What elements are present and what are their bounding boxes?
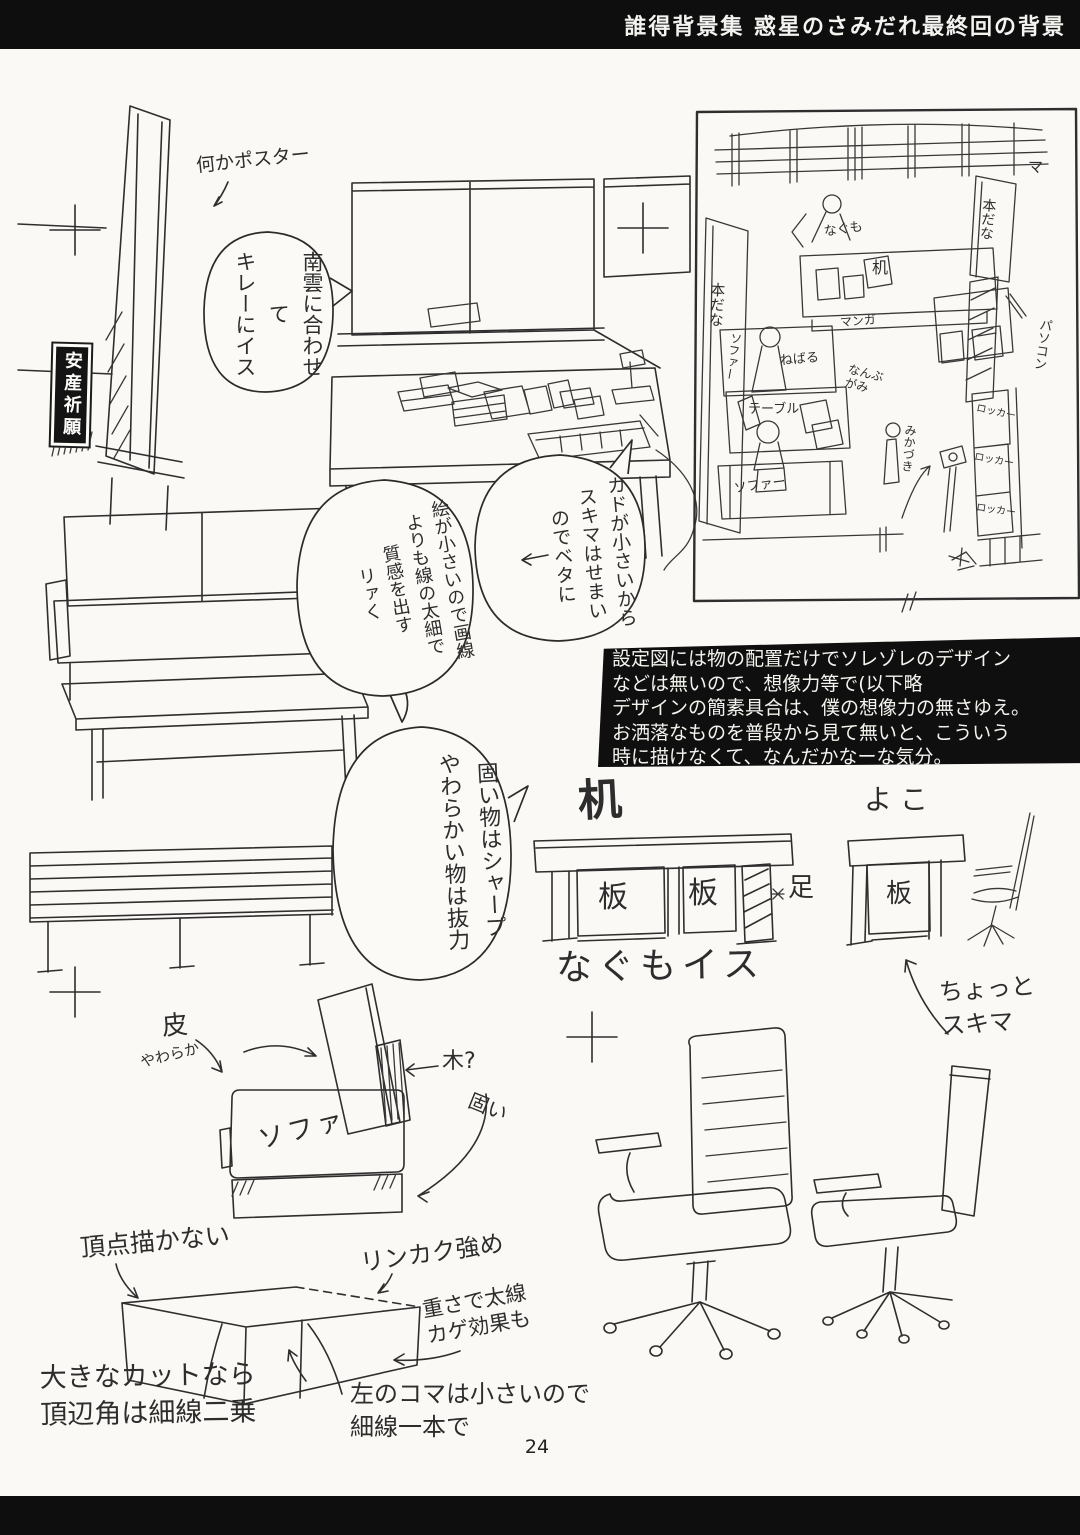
plan-bookshelf-right: 本だな [976, 197, 998, 240]
sofa-leather-label: 皮 [161, 1009, 190, 1045]
box-small-panel-label: 左のコマは小さいので 細線一本で [350, 1378, 590, 1444]
sofa-wood-label: 木? [442, 1048, 476, 1077]
desk-board-right-label: 板 [688, 874, 718, 913]
plan-bookshelf-left: 本だな [705, 282, 727, 328]
plan-desk: 机 [872, 258, 888, 279]
desk-leg-label: 足 [788, 872, 814, 906]
note-box: 設定図には物の配置だけでソレゾレのデザイン などは無いので、想像力等で(以下略 … [598, 637, 1080, 767]
desk-diagram-caption: なぐもイス [556, 942, 766, 992]
plan-nebaru: ねばる [779, 350, 819, 370]
speech-bubble-tv-text: 南雲に合わせて キレーにイス [212, 246, 328, 381]
desk-board-left-label: 板 [598, 878, 628, 917]
desk-diagram-title: 机 [577, 771, 624, 830]
speech-bubble-beta-text: カドが小さいから スキマはせまい のでベタに [494, 472, 642, 638]
office-chairs-sketch [596, 1028, 990, 1359]
plan-table: テーブル [748, 402, 799, 419]
side-gap-note: ちょっと スキマ [938, 969, 1039, 1044]
poster-sign-text: 安産祈願 [54, 347, 89, 444]
plan-manga: マンガ [839, 312, 876, 331]
sofa-diagram-sketch [196, 984, 486, 1218]
poster-banner: 安産祈願 [49, 341, 94, 448]
desk-diagram-sketch [534, 834, 793, 944]
speech-bubble-hard-soft-text: 固い物はシャープ やわらかい物は抜力 [342, 734, 514, 972]
sketch-layer [0, 0, 1080, 1535]
speech-bubble-lines-text: 絵が小さいので画線 よりも線の太細で 質感を出す リァく [291, 484, 482, 699]
note-box-text: 設定図には物の配置だけでソレゾレのデザイン などは無いので、想像力等で(以下略 … [612, 647, 1030, 770]
plan-window-mark: マ [1028, 158, 1043, 178]
page-number: 24 [512, 1436, 562, 1458]
side-board-label: 板 [886, 878, 912, 912]
footer-bar [0, 1496, 1080, 1535]
side-diagram-title: よこ [864, 782, 936, 818]
box-big-cut-label: 大きなカットなら 頂辺角は細線二乗 [39, 1356, 256, 1434]
scanned-page: 誰得背景集 惑星のさみだれ最終回の背景 [0, 0, 1080, 1535]
floor-plan-sketch [694, 109, 1079, 612]
